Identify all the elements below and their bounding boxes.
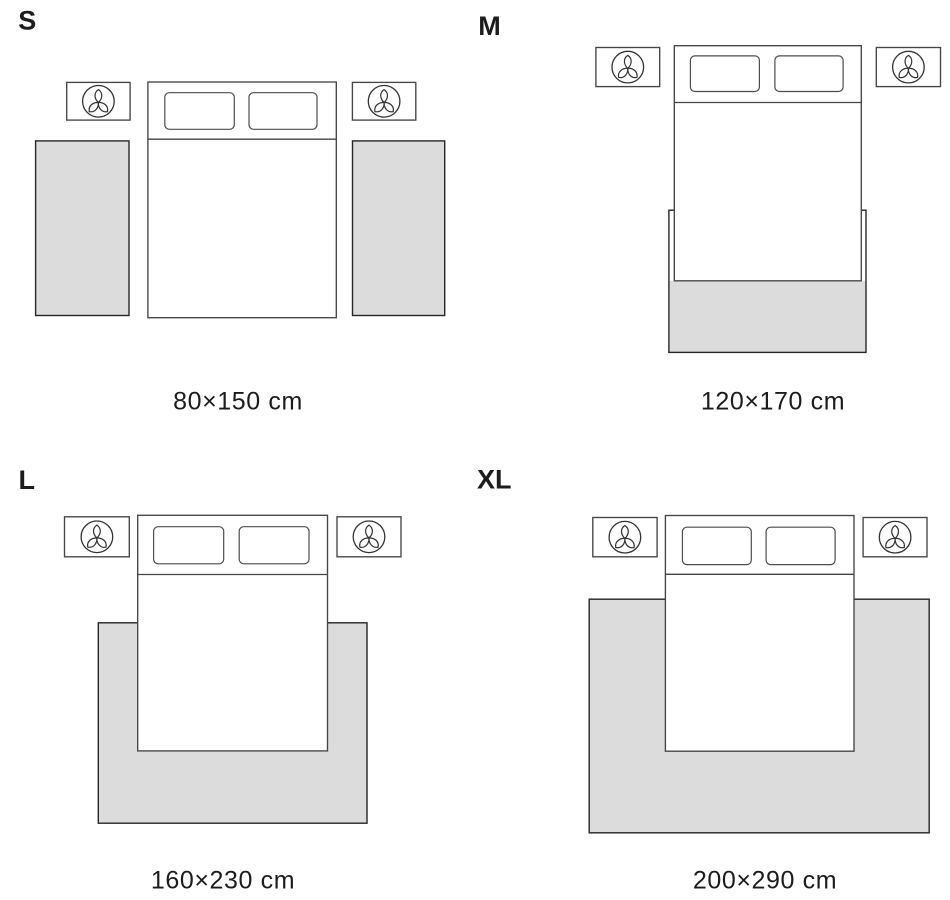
svg-text:L: L: [19, 465, 36, 495]
svg-text:120×170 cm: 120×170 cm: [701, 388, 845, 416]
svg-text:S: S: [18, 5, 36, 35]
svg-text:XL: XL: [477, 464, 512, 494]
svg-text:200×290 cm: 200×290 cm: [693, 867, 837, 895]
svg-text:M: M: [478, 11, 501, 41]
svg-text:80×150 cm: 80×150 cm: [173, 388, 303, 416]
svg-text:160×230 cm: 160×230 cm: [151, 866, 295, 894]
